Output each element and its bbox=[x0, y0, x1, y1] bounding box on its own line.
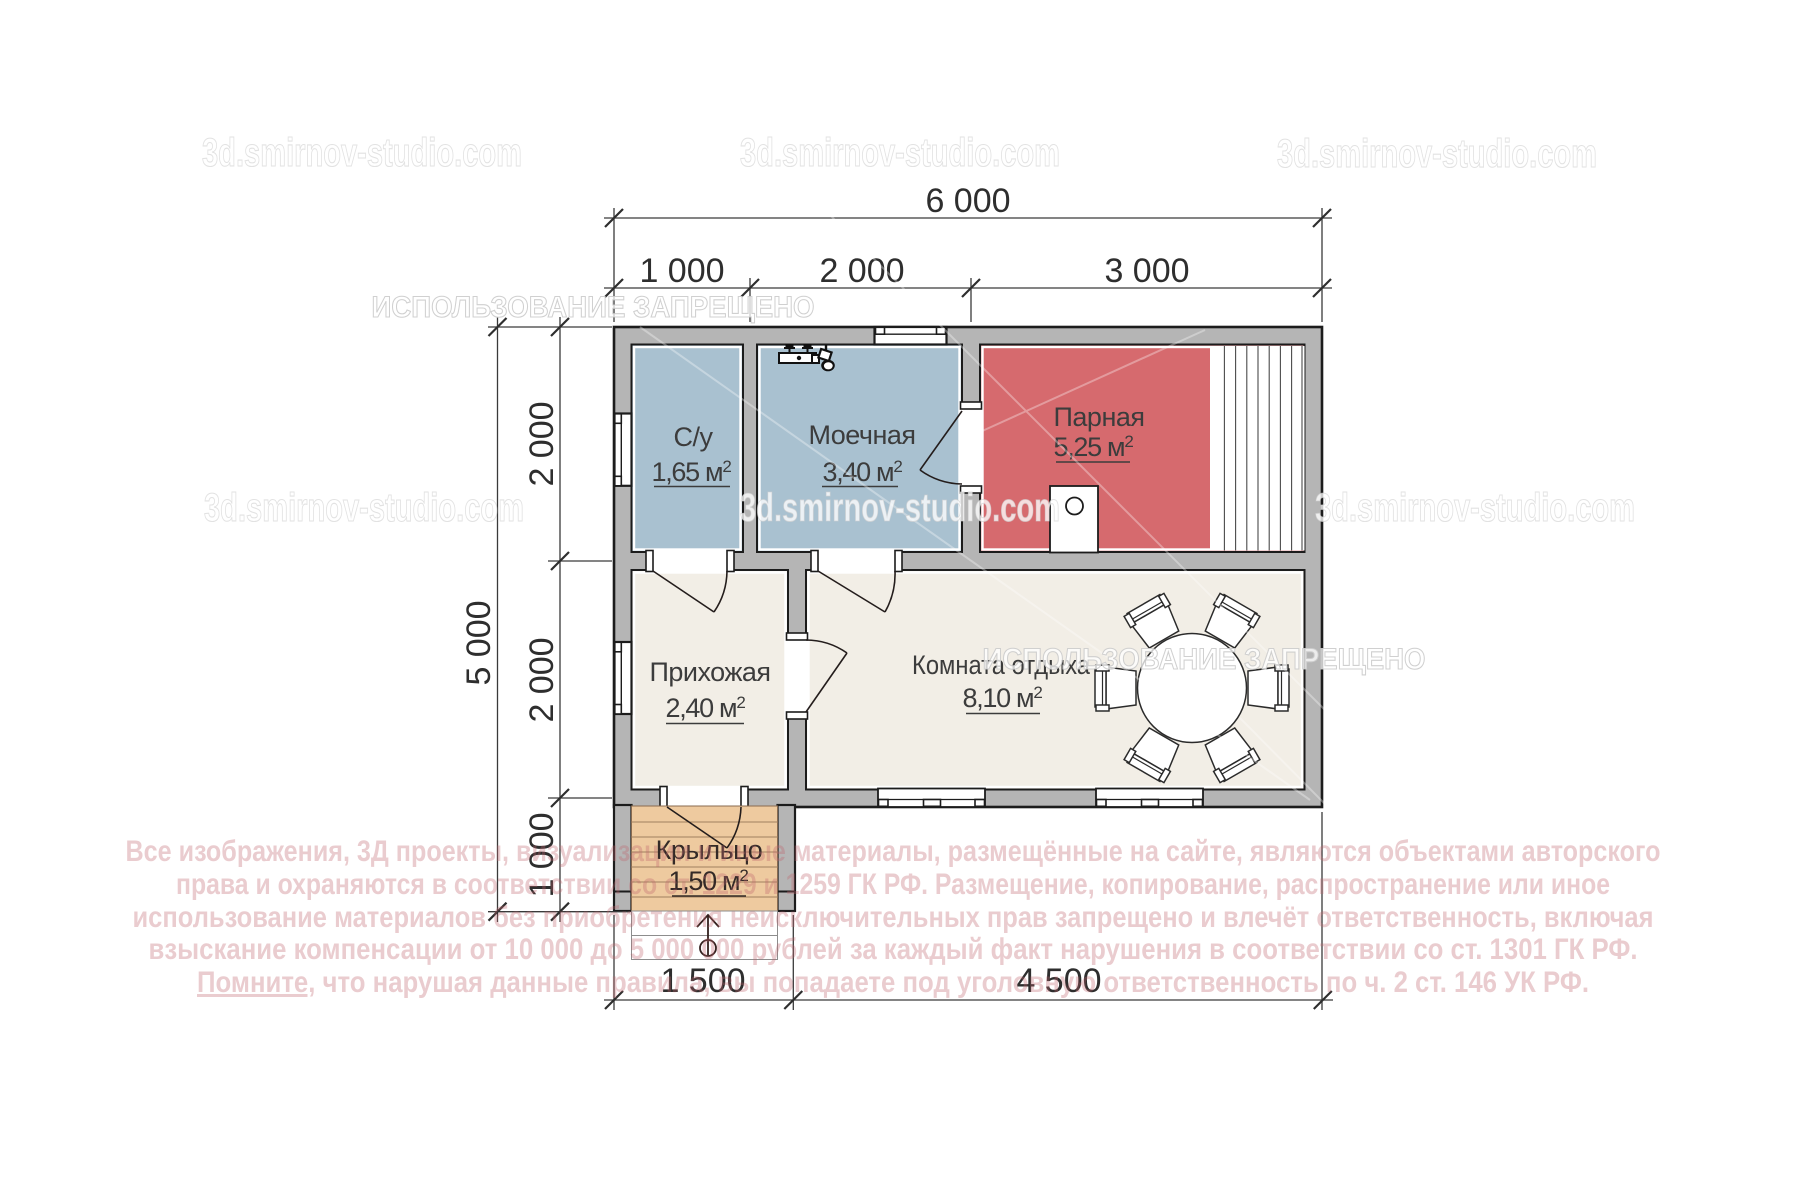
svg-text:3 000: 3 000 bbox=[1104, 252, 1189, 290]
svg-text:ИСПОЛЬЗОВАНИЕ ЗАПРЕЩЕНО: ИСПОЛЬЗОВАНИЕ ЗАПРЕЩЕНО bbox=[983, 643, 1426, 676]
svg-text:3d.smirnov-studio.com: 3d.smirnov-studio.com bbox=[204, 486, 524, 530]
svg-text:Все изображения, 3Д проекты, в: Все изображения, 3Д проекты, визуализаци… bbox=[126, 835, 1661, 868]
svg-text:Помните, что нарушая данные пр: Помните, что нарушая данные правила, вы … bbox=[197, 966, 1589, 999]
svg-text:3d.smirnov-studio.com: 3d.smirnov-studio.com bbox=[740, 131, 1060, 175]
svg-text:С/у: С/у bbox=[674, 422, 714, 452]
svg-text:2 000: 2 000 bbox=[523, 401, 561, 486]
svg-text:1,65 м2: 1,65 м2 bbox=[652, 457, 732, 487]
svg-text:права и охраняются в соответст: права и охраняются в соответствии со ст.… bbox=[176, 868, 1610, 901]
svg-text:2 000: 2 000 bbox=[819, 252, 904, 290]
svg-text:взыскание компенсации от 10 00: взыскание компенсации от 10 000 до 5 000… bbox=[149, 933, 1638, 966]
svg-text:2,40 м2: 2,40 м2 bbox=[666, 693, 746, 723]
svg-text:Прихожая: Прихожая bbox=[649, 657, 770, 687]
svg-text:3d.smirnov-studio.com: 3d.smirnov-studio.com bbox=[1315, 486, 1635, 530]
svg-text:ИСПОЛЬЗОВАНИЕ ЗАПРЕЩЕНО: ИСПОЛЬЗОВАНИЕ ЗАПРЕЩЕНО bbox=[372, 291, 815, 324]
svg-text:использование материалов без п: использование материалов без приобретени… bbox=[133, 901, 1654, 934]
svg-text:3d.smirnov-studio.com: 3d.smirnov-studio.com bbox=[202, 131, 522, 175]
svg-text:3d.smirnov-studio.com: 3d.smirnov-studio.com bbox=[740, 486, 1060, 530]
svg-text:Моечная: Моечная bbox=[808, 420, 915, 450]
svg-text:8,10 м2: 8,10 м2 bbox=[963, 683, 1043, 713]
svg-text:Парная: Парная bbox=[1054, 402, 1145, 432]
svg-text:3,40 м2: 3,40 м2 bbox=[823, 457, 903, 487]
svg-text:5,25 м2: 5,25 м2 bbox=[1054, 432, 1134, 462]
svg-text:3d.smirnov-studio.com: 3d.smirnov-studio.com bbox=[1277, 132, 1597, 176]
svg-text:6 000: 6 000 bbox=[925, 182, 1010, 220]
svg-text:5 000: 5 000 bbox=[460, 600, 498, 685]
svg-text:1 000: 1 000 bbox=[639, 252, 724, 290]
svg-text:2 000: 2 000 bbox=[523, 637, 561, 722]
